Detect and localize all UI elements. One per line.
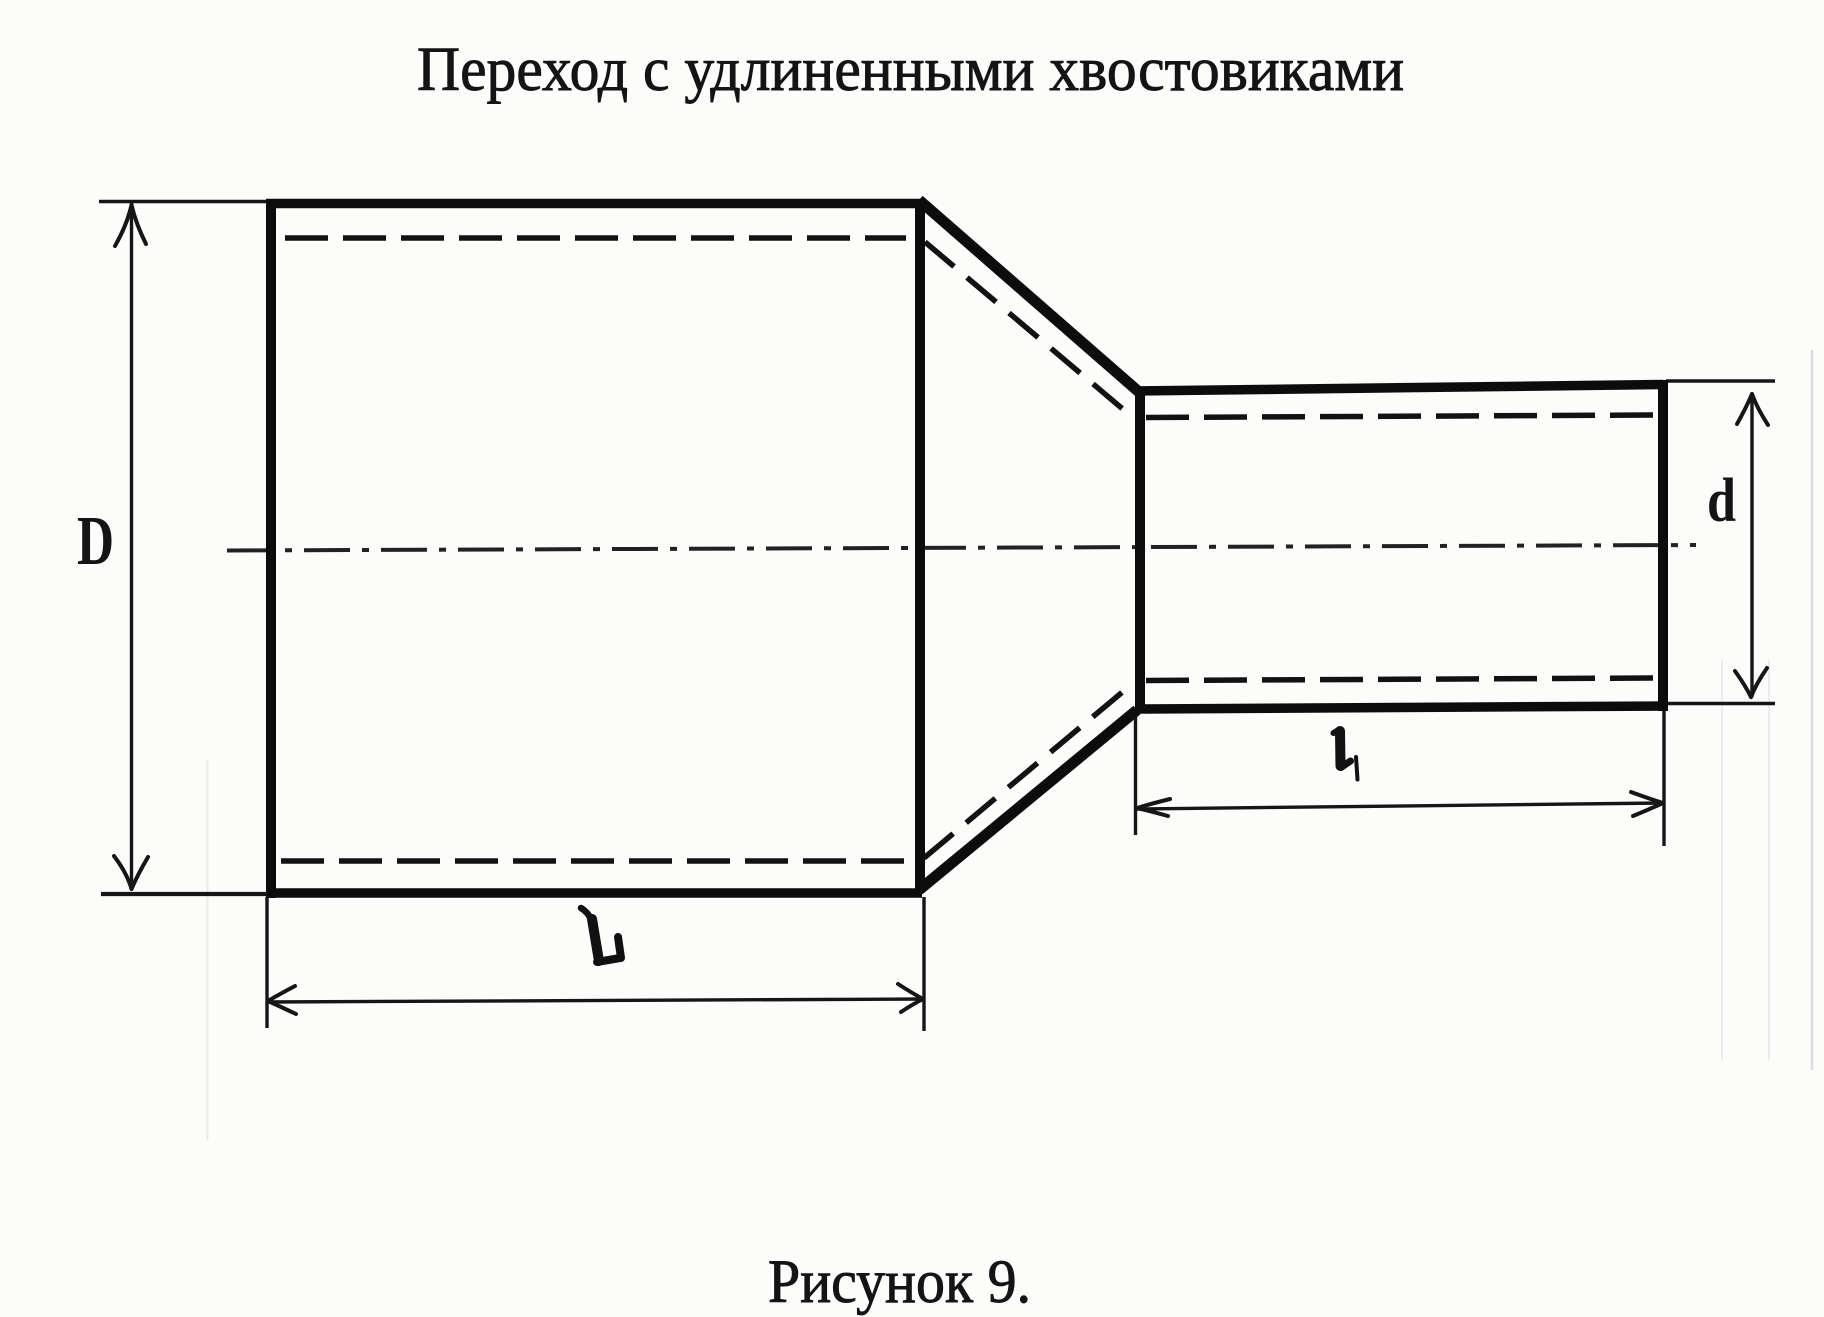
svg-text:Переход с удлиненными хвостови: Переход с удлиненными хвостовиками — [417, 36, 1404, 104]
svg-text:D: D — [77, 503, 114, 580]
svg-text:Рисунок 9.: Рисунок 9. — [768, 1249, 1031, 1316]
svg-text:d: d — [1707, 467, 1736, 535]
